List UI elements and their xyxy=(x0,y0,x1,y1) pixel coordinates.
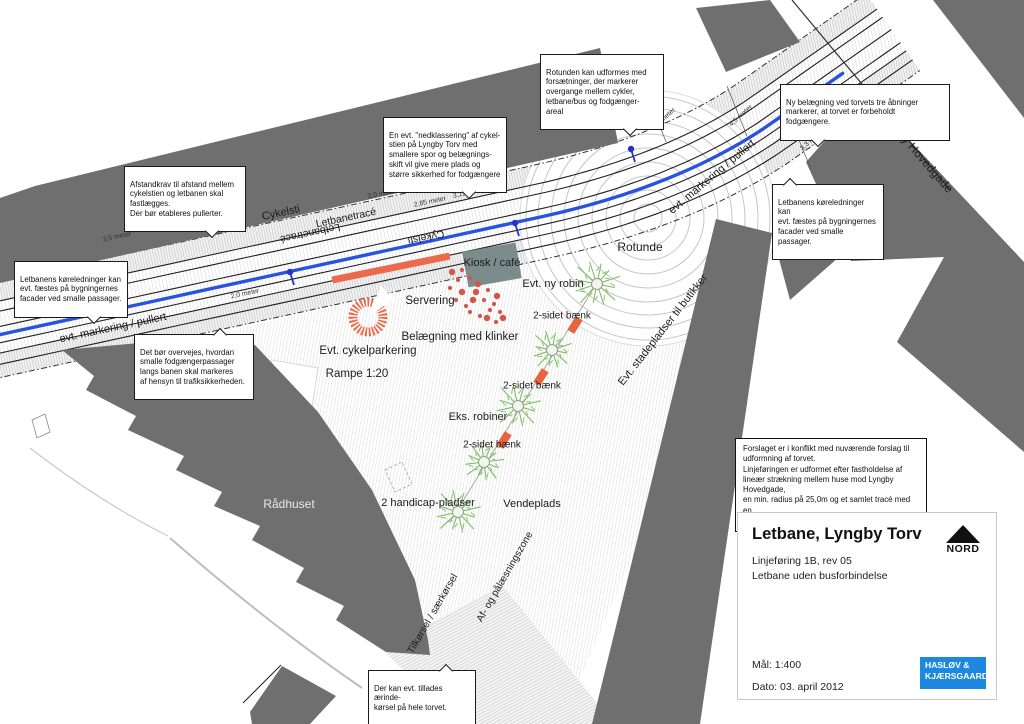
callout-det-boer-text: Det bør overvejes, hvordan smalle fodgæn… xyxy=(140,348,245,386)
company-logo-line1: HASLØV & xyxy=(925,660,981,671)
label-baenk-1: 2-sidet bænk xyxy=(533,311,591,322)
company-logo-line2: KJÆRSGAARD xyxy=(925,671,981,682)
label-cykelparkering: Evt. cykelparkering xyxy=(319,345,416,357)
callout-koereledninger-left: Letbanens køreledninger kan evt. fæstes … xyxy=(14,261,128,318)
callout-nedklassering-text: En evt. "nedklassering" af cykel- stien … xyxy=(389,131,500,179)
callout-ny-belaegning: Ny belægning ved torvets tre åbninger ma… xyxy=(780,84,950,141)
label-handicap: 2 handicap-pladser xyxy=(381,497,475,509)
chair-dot xyxy=(456,278,460,282)
drawing-subtitle-1: Linjeføring 1B, rev 05 xyxy=(752,555,852,567)
chair-dot xyxy=(449,269,455,275)
callout-koereledninger-left-text: Letbanens køreledninger kan evt. fæstes … xyxy=(20,275,121,303)
chair-dot xyxy=(482,298,486,302)
label-kiosk-cafe: Kiosk / café xyxy=(464,257,521,269)
label-vendeplads: Vendeplads xyxy=(503,498,561,510)
callout-ny-belaegning-text: Ny belægning ved torvets tre åbninger ma… xyxy=(786,98,918,126)
callout-aerindekoersel-text: Der kan evt. tillades ærinde- kørsel på … xyxy=(374,684,447,712)
chair-dot xyxy=(494,320,498,324)
chair-dot xyxy=(500,315,506,321)
label-belaegning: Belægning med klinker xyxy=(402,331,519,343)
drawing-title: Letbane, Lyngby Torv xyxy=(752,525,922,544)
label-servering: Servering xyxy=(405,295,454,307)
label-raadhuset: Rådhuset xyxy=(263,497,314,511)
callout-rotunden-text: Rotunden kan udformes med forsætninger, … xyxy=(546,68,647,116)
site-plan: Cykelsti Letbanetracé Letbanetracé Cykel… xyxy=(0,0,1024,724)
label-baenk-2: 2-sidet bænk xyxy=(503,381,561,392)
drawing-subtitle-2: Letbane uden busforbindelse xyxy=(752,570,887,582)
chair-dot xyxy=(475,281,481,287)
building-south-diamond xyxy=(250,666,336,724)
callout-aerindekoersel: Der kan evt. tillades ærinde- kørsel på … xyxy=(368,670,476,724)
label-baenk-3: 2-sidet bænk xyxy=(463,440,521,451)
chair-dot xyxy=(492,302,496,306)
chair-dot xyxy=(468,310,472,314)
callout-rotunden: Rotunden kan udformes med forsætninger, … xyxy=(540,54,664,130)
chair-dot xyxy=(484,315,490,321)
outline-building xyxy=(32,414,50,438)
chair-dot xyxy=(470,297,476,303)
chair-dot xyxy=(459,289,465,295)
curb-arc-2 xyxy=(30,448,168,536)
chair-dot xyxy=(494,293,500,299)
callout-afstandskrav-text: Afstandkrav til afstand mellem cykelstie… xyxy=(130,180,234,218)
chair-dot xyxy=(486,288,490,292)
chair-dot xyxy=(464,304,468,308)
drawing-scale: Mål: 1:400 xyxy=(752,659,801,671)
north-arrow: NORD xyxy=(946,525,980,555)
chair-dot xyxy=(468,276,472,280)
north-arrow-icon xyxy=(946,525,980,543)
chair-dot xyxy=(448,286,452,290)
callout-afstandskrav: Afstandkrav til afstand mellem cykelstie… xyxy=(124,166,246,232)
chair-dot xyxy=(473,289,479,295)
callout-koereledninger-right: Letbanens køreledninger kan evt. fæstes … xyxy=(772,184,884,260)
company-logo: HASLØV & KJÆRSGAARD xyxy=(920,657,986,689)
label-rotunde: Rotunde xyxy=(617,240,662,254)
north-label: NORD xyxy=(946,543,980,555)
label-rampe: Rampe 1:20 xyxy=(326,368,389,380)
title-block: Letbane, Lyngby Torv Linjeføring 1B, rev… xyxy=(737,512,997,700)
chair-dot xyxy=(488,308,492,312)
callout-nedklassering: En evt. "nedklassering" af cykel- stien … xyxy=(383,117,507,193)
label-evt-ny-robin: Evt. ny robin xyxy=(522,278,583,290)
callout-koereledninger-right-text: Letbanens køreledninger kan evt. fæstes … xyxy=(778,198,876,246)
callout-det-boer: Det bør overvejes, hvordan smalle fodgæn… xyxy=(134,334,254,400)
label-eks-robiner: Eks. robiner xyxy=(449,411,508,423)
chair-dot xyxy=(498,310,502,314)
chair-dot xyxy=(478,314,482,318)
drawing-date: Dato: 03. april 2012 xyxy=(752,681,844,693)
